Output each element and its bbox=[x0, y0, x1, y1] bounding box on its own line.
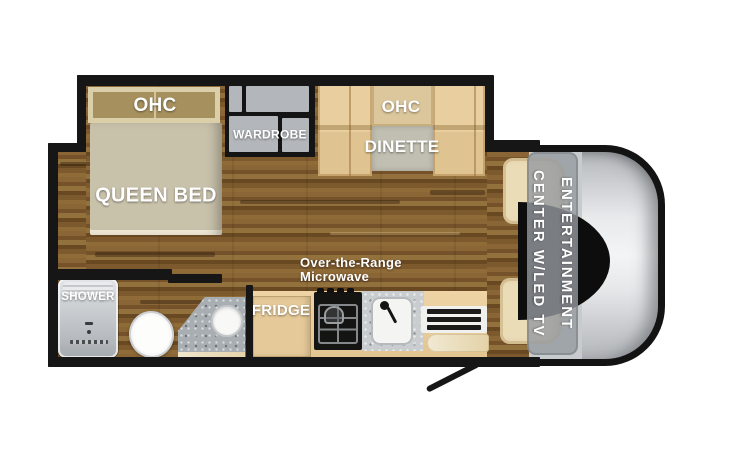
rv-floorplan-diagram: ENTERTAINMENT CENTER W/LED TV OHC QUEEN … bbox=[0, 0, 731, 469]
wall-bedslide-left bbox=[77, 75, 86, 152]
wardrobe-cabinet bbox=[225, 79, 315, 157]
wardrobe-cell bbox=[246, 86, 309, 112]
wall-kitchen bbox=[246, 285, 253, 360]
entry-lower-step bbox=[427, 334, 489, 352]
cab-body: ENTERTAINMENT CENTER W/LED TV bbox=[487, 145, 665, 366]
dinette-label: DINETTE bbox=[365, 138, 440, 156]
wood-grain-streak bbox=[430, 190, 485, 195]
microwave-label-line1: Over-the-Range bbox=[300, 256, 402, 270]
dinette-bench-left bbox=[318, 81, 372, 176]
wood-grain-streak bbox=[140, 300, 210, 304]
entry-steps bbox=[421, 306, 487, 333]
wardrobe-cell bbox=[229, 86, 242, 112]
stove-knob bbox=[327, 288, 334, 293]
entertainment-label-line1: ENTERTAINMENT bbox=[558, 154, 575, 353]
wall-right-main bbox=[485, 78, 494, 152]
step-tread bbox=[427, 317, 481, 322]
stove-knob bbox=[347, 288, 354, 293]
stove-burner-dome bbox=[324, 306, 344, 324]
shower-drain bbox=[85, 322, 93, 325]
microwave-label-line2: Microwave bbox=[300, 270, 402, 284]
entertainment-center-band: ENTERTAINMENT CENTER W/LED TV bbox=[527, 152, 578, 355]
wood-grain-streak bbox=[330, 232, 460, 235]
entertainment-label-line2: CENTER W/LED TV bbox=[530, 154, 547, 353]
wall-bathroom-1 bbox=[50, 269, 172, 280]
shower-label: SHOWER bbox=[61, 291, 115, 303]
stove-knob bbox=[317, 288, 324, 293]
wood-grain-streak bbox=[95, 252, 215, 257]
bench-seam bbox=[318, 125, 372, 130]
vanity-sink bbox=[211, 305, 243, 337]
stove-knob bbox=[337, 288, 344, 293]
wood-grain-streak bbox=[240, 200, 400, 204]
queen-bed bbox=[90, 123, 222, 235]
shower-drain bbox=[70, 340, 108, 344]
wardrobe-label: WARDROBE bbox=[233, 129, 307, 142]
bedroom-ohc-label: OHC bbox=[133, 96, 176, 116]
dinette-ohc-label: OHC bbox=[382, 98, 421, 116]
wall-left bbox=[48, 143, 58, 367]
queen-bed-label: QUEEN BED bbox=[95, 186, 217, 207]
microwave-label: Over-the-Range Microwave bbox=[300, 256, 402, 283]
shower-drain bbox=[87, 330, 91, 334]
bench-seam bbox=[433, 125, 485, 130]
step-tread bbox=[427, 325, 481, 330]
wall-top bbox=[77, 75, 494, 86]
wall-bathroom-2 bbox=[168, 274, 222, 283]
dinette-bench-right bbox=[433, 81, 485, 176]
fridge-label: FRIDGE bbox=[252, 303, 310, 319]
step-tread bbox=[427, 309, 481, 314]
kitchen-sink-counter bbox=[362, 291, 424, 351]
stove bbox=[314, 292, 362, 350]
kitchen-sink-basin bbox=[371, 297, 413, 345]
